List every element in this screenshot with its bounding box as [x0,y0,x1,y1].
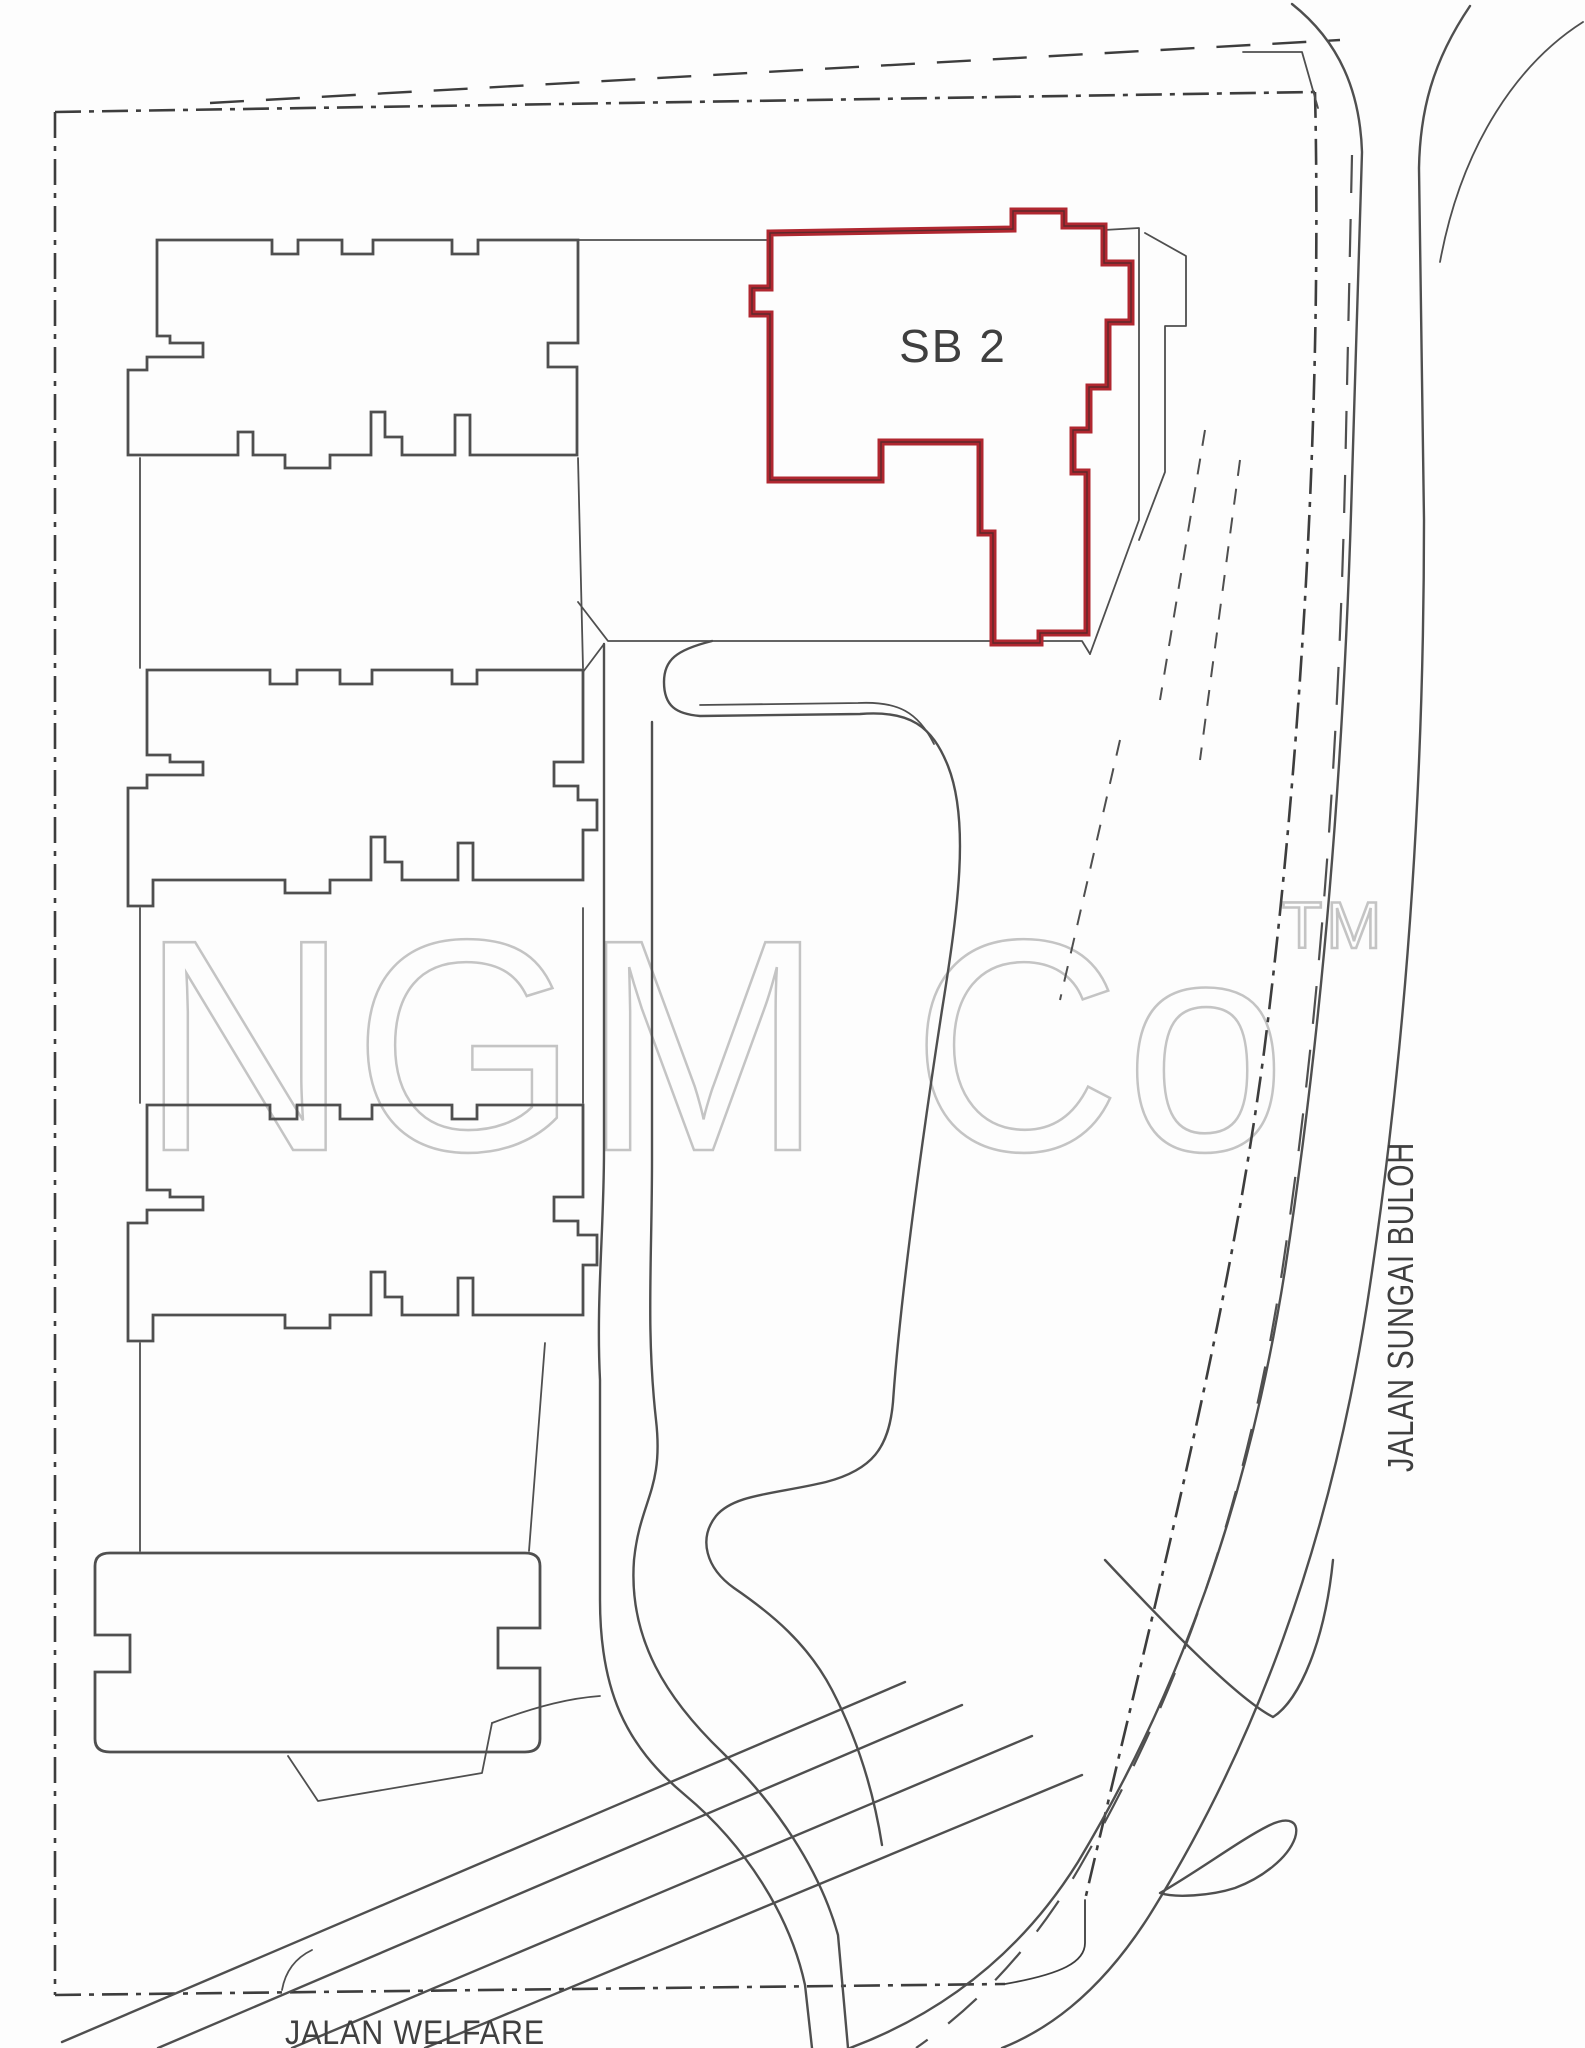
building-d-annex [288,1723,492,1801]
bottom-road-edge-4 [425,1775,1082,2048]
watermark-text: NGM Co [140,877,1290,1214]
bottom-road-edge-2 [158,1705,962,2048]
loop-road-right-edge [664,641,960,1845]
watermark-tm-symbol: TM [1282,888,1385,962]
building-sb2-highlight-outline [752,211,1131,643]
road-slip-corner-top [1243,52,1318,108]
boundary-bottom-corner [1005,1900,1085,1984]
bottom-road-edge-1 [62,1682,905,2042]
lot-line-right-of-red-2 [1139,233,1186,540]
boundary-top [55,92,1315,112]
road-label-jalan-sungai-buloh: JALAN SUNGAI BULOH [1380,1142,1421,1472]
site-plan-drawing: NGM Co TM [0,0,1585,2048]
road-label-jalan-welfare: JALAN WELFARE [285,2014,545,2048]
lot-line-right-1 [578,458,583,668]
site-plan-page: NGM Co TM [0,0,1585,2048]
lot-line-diagonal [583,644,604,672]
bottom-road-edge-3 [292,1736,1032,2048]
loop-road-right-edge-twin [700,703,934,744]
unit-label-sb2: SB 2 [899,320,1007,372]
building-block-d [95,1553,540,1752]
traffic-island-teardrop [1160,1821,1296,1896]
building-block-b [128,670,597,906]
watermark-group: NGM Co TM [140,877,1385,1214]
boundary-bottom [55,1984,1005,1995]
driveway-connector [492,1696,600,1723]
highlighted-building-group [752,211,1131,643]
road-arc-top-right [1440,22,1583,262]
lot-line-right-3 [529,1343,545,1551]
loop-road-left-edge [599,644,812,2048]
building-block-a [128,240,578,468]
lane-dash-1 [1160,430,1205,700]
road-fork-v [1105,1560,1333,1717]
lane-dash-2 [1200,460,1240,760]
